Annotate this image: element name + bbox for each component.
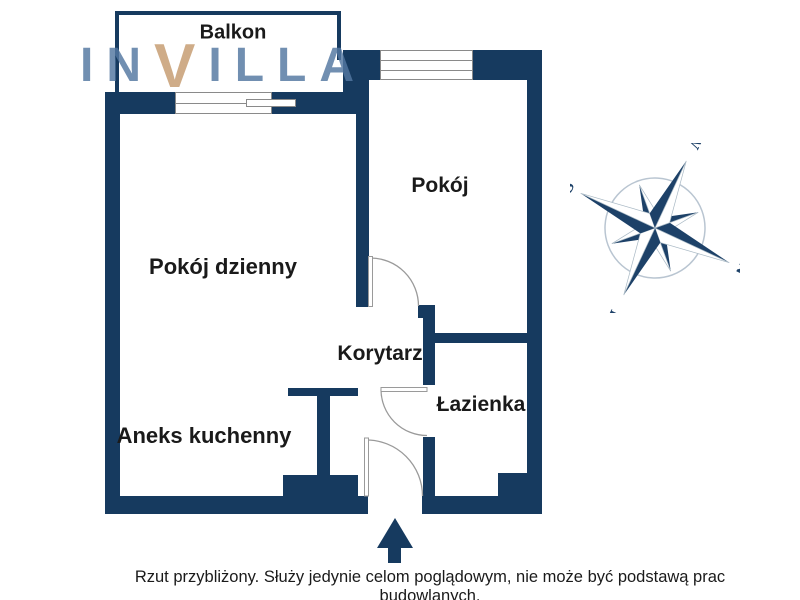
room-label-lazienka: Łazienka bbox=[437, 393, 526, 417]
compass-letter-s: S bbox=[570, 178, 578, 195]
room-label-pokoj-dzienny: Pokój dzienny bbox=[149, 254, 297, 280]
wall-outer-left bbox=[105, 92, 120, 514]
balcony-wall-top bbox=[115, 11, 341, 15]
room-label-korytarz: Korytarz bbox=[337, 342, 422, 366]
wall-livingroom-bedroom-divider bbox=[356, 114, 369, 307]
logo-part2: ILLA bbox=[208, 39, 367, 92]
wall-bottom-left-segment bbox=[105, 496, 368, 514]
logo-part1: IN bbox=[80, 39, 154, 92]
wall-livingroom-top bbox=[105, 92, 365, 114]
bathroom-door bbox=[381, 388, 427, 436]
bedroom-door bbox=[369, 257, 419, 307]
invilla-watermark-logo: INVILLA bbox=[80, 42, 367, 90]
wall-kitchen-partition-base bbox=[283, 475, 358, 496]
room-label-pokoj: Pokój bbox=[411, 174, 468, 198]
wall-bottom-right-segment bbox=[422, 496, 542, 514]
wall-outer-right bbox=[527, 50, 542, 514]
entrance-arrow-icon bbox=[377, 518, 413, 548]
disclaimer-text: Rzut przybliżony. Służy jedynie celom po… bbox=[98, 568, 762, 600]
wall-bedroom-top bbox=[343, 50, 542, 80]
wall-kitchen-partition-bar bbox=[288, 388, 358, 396]
compass-rose-icon: N E S W bbox=[570, 143, 740, 313]
wall-corridor-bathroom-upper bbox=[423, 305, 435, 385]
wall-bathroom-shaft bbox=[498, 473, 527, 496]
wall-bedroom-bathroom bbox=[435, 333, 527, 343]
compass-letter-n: N bbox=[732, 259, 740, 279]
wall-kitchen-partition-stem bbox=[317, 396, 330, 475]
wall-corridor-bathroom-lower bbox=[423, 437, 435, 496]
entrance-door bbox=[365, 438, 423, 496]
room-label-balkon: Balkon bbox=[200, 22, 267, 45]
compass-letter-e: E bbox=[603, 307, 624, 313]
room-label-aneks-kuchenny: Aneks kuchenny bbox=[117, 423, 292, 449]
compass-letter-w: W bbox=[684, 143, 708, 153]
floor-plan-canvas: INVILLA Balkon Pokój Pokój dzienny Koryt… bbox=[0, 0, 800, 600]
entrance-arrow-stem bbox=[388, 546, 401, 563]
